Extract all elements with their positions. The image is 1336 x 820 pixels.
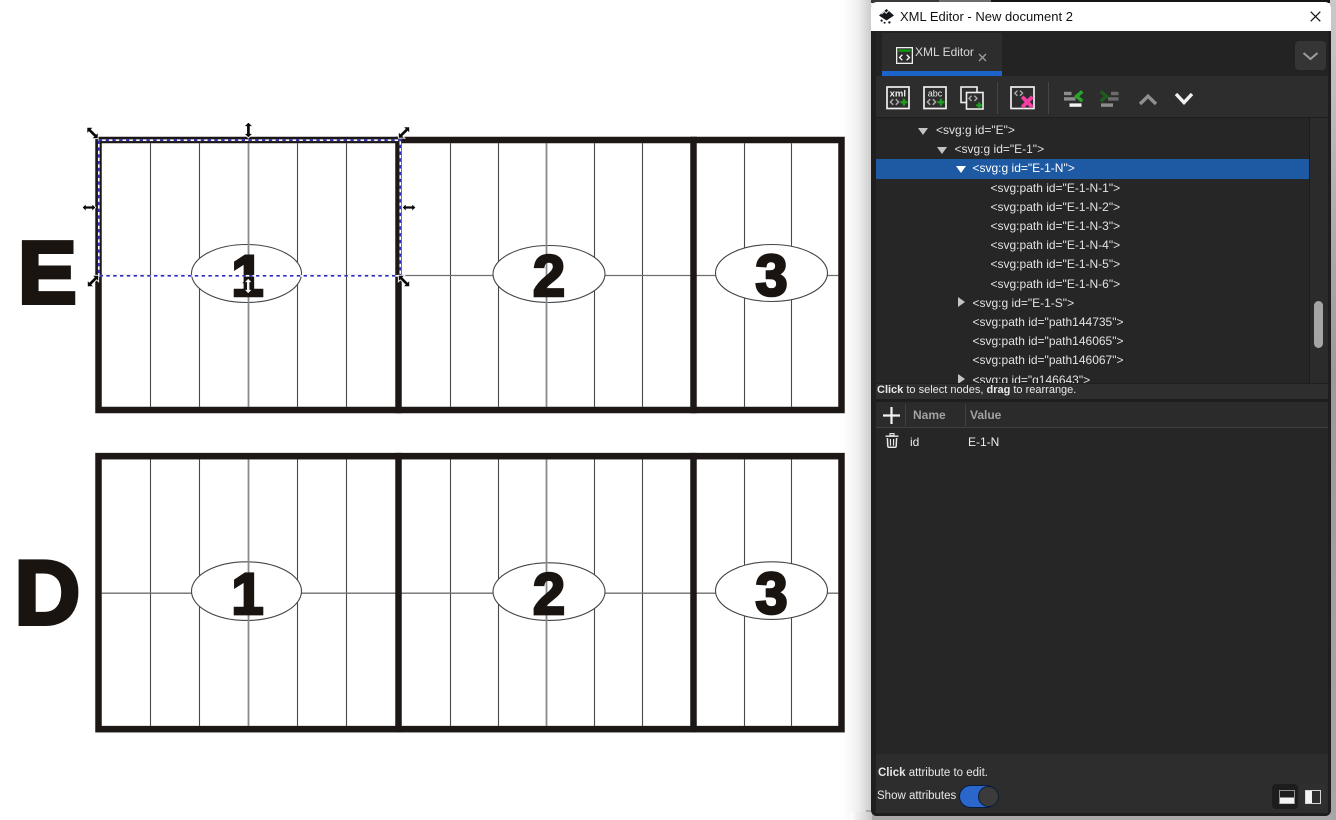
svg-text:abc: abc [928,89,943,99]
svg-text:3: 3 [755,244,787,309]
svg-text:1: 1 [231,562,263,627]
svg-text:E: E [18,223,77,322]
svg-text:D: D [15,543,81,644]
svg-text:3: 3 [755,561,787,626]
svg-text:2: 2 [533,562,565,627]
svg-text:xml: xml [890,89,906,100]
svg-text:2: 2 [533,244,565,309]
